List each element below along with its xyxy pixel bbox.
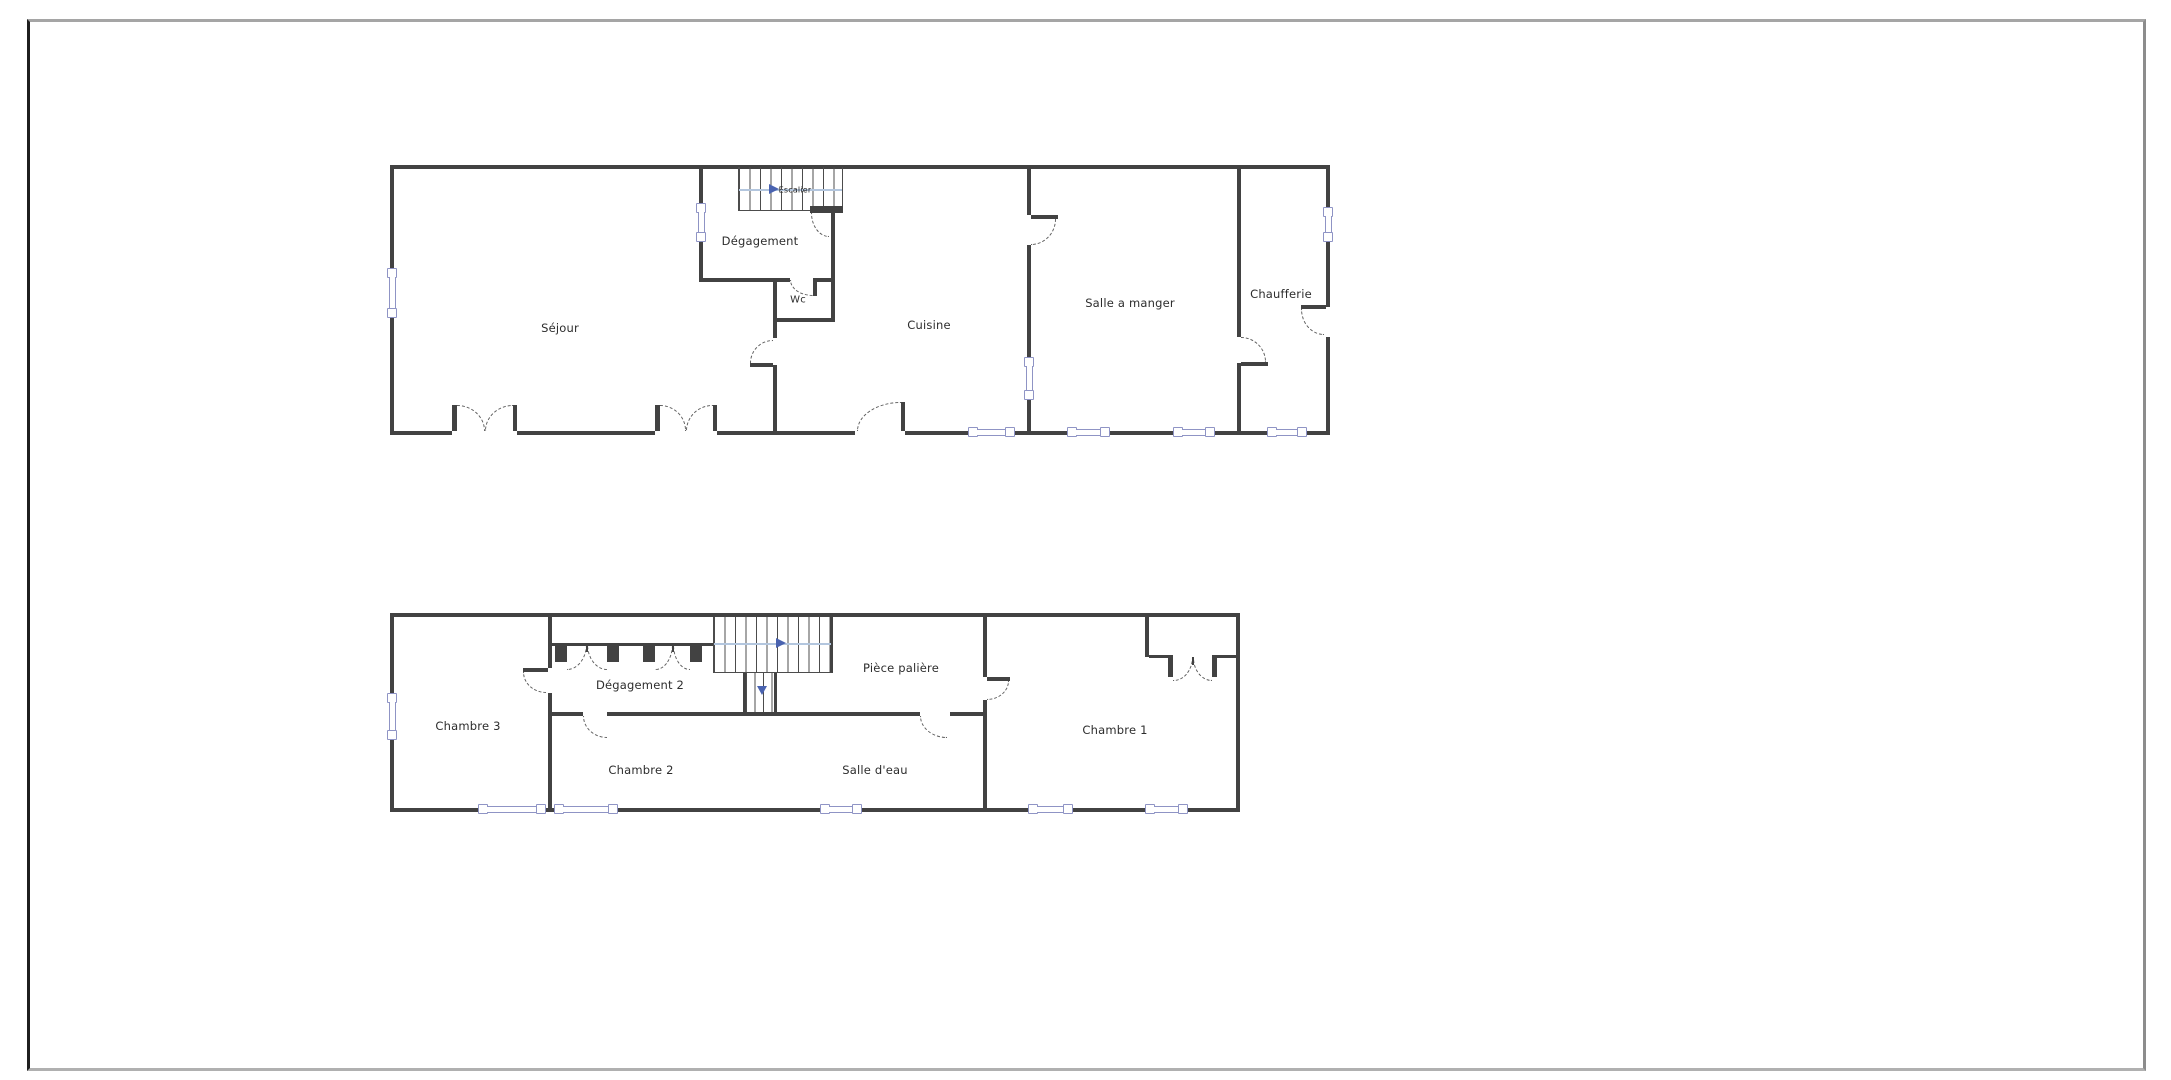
door-apex bbox=[586, 644, 588, 652]
wall-segment bbox=[548, 693, 552, 812]
window-end bbox=[608, 804, 618, 814]
window bbox=[478, 803, 546, 816]
room-label-degagement2: Dégagement 2 bbox=[596, 678, 684, 692]
wall-segment bbox=[517, 431, 655, 435]
wall-segment bbox=[1027, 400, 1031, 435]
door-leaf bbox=[901, 402, 905, 431]
room-label-chaufferie: Chaufferie bbox=[1250, 287, 1312, 301]
door-swing-arc bbox=[660, 405, 687, 431]
door-swing-arc bbox=[583, 716, 607, 738]
wall-segment bbox=[699, 165, 703, 203]
wall-segment bbox=[552, 712, 583, 716]
wall-segment bbox=[390, 318, 394, 435]
door-swing-arc bbox=[673, 644, 691, 670]
window bbox=[695, 203, 708, 242]
room-label-chambre1: Chambre 1 bbox=[1082, 723, 1147, 737]
room-label-chambre3: Chambre 3 bbox=[435, 719, 500, 733]
wall-segment bbox=[983, 700, 987, 812]
room-label-degagement: Dégagement bbox=[722, 234, 799, 248]
window-glass bbox=[977, 429, 1006, 436]
window-glass bbox=[1037, 806, 1064, 813]
wall-segment bbox=[1237, 363, 1241, 435]
door-swing-arc bbox=[485, 405, 513, 431]
french-door bbox=[655, 405, 717, 431]
window bbox=[1028, 803, 1073, 816]
door-swing-arc bbox=[587, 644, 607, 670]
window-end bbox=[1205, 427, 1215, 437]
window bbox=[386, 268, 399, 318]
closet-wall bbox=[1217, 655, 1236, 658]
staircase bbox=[713, 617, 833, 673]
closet-double-door bbox=[567, 644, 607, 670]
closet-jamb bbox=[643, 643, 655, 662]
window-glass bbox=[829, 806, 853, 813]
window-end bbox=[387, 730, 397, 740]
window-end bbox=[1063, 804, 1073, 814]
wall-segment bbox=[773, 322, 777, 338]
door-apex bbox=[1192, 657, 1194, 665]
door-leaf bbox=[813, 278, 817, 296]
wall-segment bbox=[699, 242, 703, 278]
wall-segment bbox=[607, 712, 920, 716]
door-swing-arc bbox=[1173, 657, 1193, 681]
door-swing-arc bbox=[567, 644, 587, 670]
door-leaf bbox=[750, 363, 773, 367]
wall-segment bbox=[1236, 613, 1240, 812]
room-label-escalier: Escalier bbox=[779, 186, 812, 195]
window-glass bbox=[1076, 429, 1101, 436]
room-label-salle-a-manger: Salle a manger bbox=[1085, 296, 1175, 310]
window-end bbox=[387, 308, 397, 318]
door-swing-arc bbox=[811, 213, 829, 237]
window-glass bbox=[563, 806, 609, 813]
closet-wall bbox=[1149, 655, 1168, 658]
door-swing-arc bbox=[750, 340, 773, 363]
room-label-wc: Wc bbox=[790, 295, 806, 306]
door-swing-arc bbox=[1241, 337, 1266, 362]
wall-segment bbox=[1015, 431, 1067, 435]
closet-jamb bbox=[607, 643, 619, 662]
wall-segment bbox=[1188, 808, 1240, 812]
floor-plan-first: Chambre 3 Dégagement 2 Chambre 2 Pièce p… bbox=[390, 613, 1240, 812]
closet-double-door bbox=[655, 644, 690, 670]
wall-segment bbox=[390, 165, 394, 268]
wall-segment bbox=[1145, 617, 1149, 657]
door-leaf bbox=[1241, 362, 1268, 366]
window-glass bbox=[389, 277, 396, 309]
window-end bbox=[1297, 427, 1307, 437]
wall-segment bbox=[905, 431, 968, 435]
closet-jamb bbox=[690, 643, 702, 662]
door-swing-arc bbox=[1193, 657, 1213, 681]
floor-plan-ground: Escalier Séjour Dégagement Wc Cuisine Sa… bbox=[390, 165, 1330, 435]
window-end bbox=[1005, 427, 1015, 437]
window bbox=[1067, 426, 1110, 439]
window bbox=[820, 803, 862, 816]
window-end bbox=[1024, 390, 1034, 400]
window-glass bbox=[1276, 429, 1298, 436]
wall-segment bbox=[1326, 242, 1330, 307]
door-leaf bbox=[713, 405, 718, 431]
room-label-sejour: Séjour bbox=[541, 321, 579, 335]
wall-segment bbox=[950, 712, 983, 716]
window bbox=[1023, 357, 1036, 400]
window bbox=[1267, 426, 1307, 439]
door-swing-arc bbox=[1301, 309, 1324, 335]
window-glass bbox=[487, 806, 537, 813]
closet-jamb bbox=[555, 643, 567, 662]
stair-arrow-icon bbox=[757, 686, 767, 695]
window-end bbox=[1100, 427, 1110, 437]
closet-double-door bbox=[1173, 657, 1212, 681]
door-swing-arc bbox=[655, 644, 673, 670]
door-leaf bbox=[513, 405, 518, 431]
window bbox=[554, 803, 618, 816]
window-end bbox=[696, 232, 706, 242]
door-swing-arc bbox=[1031, 219, 1056, 245]
wall-segment bbox=[390, 740, 394, 812]
french-door bbox=[452, 405, 517, 431]
wall-segment bbox=[618, 808, 820, 812]
wall-segment bbox=[831, 213, 835, 322]
door-swing-arc bbox=[987, 681, 1009, 700]
staircase-return bbox=[743, 673, 777, 715]
wall-segment bbox=[390, 613, 394, 693]
wall-segment bbox=[1326, 337, 1330, 435]
window-end bbox=[852, 804, 862, 814]
wall-segment bbox=[1326, 165, 1330, 207]
wall-segment bbox=[548, 613, 552, 668]
door-swing-arc bbox=[686, 405, 713, 431]
door-leaf bbox=[452, 405, 457, 431]
wall-segment bbox=[390, 808, 478, 812]
wall-segment bbox=[773, 318, 835, 322]
door-leaf bbox=[655, 405, 660, 431]
wall-segment bbox=[983, 613, 987, 677]
room-label-chambre2: Chambre 2 bbox=[608, 763, 673, 777]
window-glass bbox=[698, 212, 705, 233]
stair-direction-line bbox=[714, 643, 831, 645]
window bbox=[1322, 207, 1335, 242]
wall-segment bbox=[773, 365, 777, 431]
window bbox=[968, 426, 1015, 439]
window bbox=[1145, 803, 1188, 816]
wall-segment bbox=[1027, 165, 1031, 215]
door-apex bbox=[672, 644, 674, 652]
window-end bbox=[1178, 804, 1188, 814]
stair-landing bbox=[810, 206, 843, 213]
wall-segment bbox=[1073, 808, 1145, 812]
window bbox=[1173, 426, 1215, 439]
stair-arrow-icon bbox=[769, 184, 779, 194]
room-label-cuisine: Cuisine bbox=[907, 318, 950, 332]
window-glass bbox=[389, 702, 396, 731]
door-swing-arc bbox=[857, 402, 901, 431]
wall-segment bbox=[717, 431, 855, 435]
wall-segment bbox=[1215, 431, 1267, 435]
window-end bbox=[1323, 232, 1333, 242]
door-swing-arc bbox=[920, 716, 947, 738]
wall-segment bbox=[862, 808, 1028, 812]
room-label-salle-deau: Salle d'eau bbox=[842, 763, 908, 777]
room-label-piece-paliere: Pièce palière bbox=[863, 661, 939, 675]
window-end bbox=[536, 804, 546, 814]
wall-segment bbox=[1110, 431, 1173, 435]
window-glass bbox=[1154, 806, 1179, 813]
window-glass bbox=[1026, 366, 1033, 391]
wall-segment bbox=[390, 431, 452, 435]
door-swing-arc bbox=[457, 405, 485, 431]
window bbox=[386, 693, 399, 740]
wall-segment bbox=[390, 165, 1330, 169]
wall-segment bbox=[1237, 165, 1241, 337]
window-glass bbox=[1182, 429, 1206, 436]
screenshot-root: { "colors": { "wall": "#424242", "win": … bbox=[0, 0, 2171, 1080]
door-swing-arc bbox=[523, 672, 546, 693]
stair-arrow-icon bbox=[776, 638, 786, 648]
window-glass bbox=[1325, 216, 1332, 233]
closet-jamb bbox=[1212, 655, 1217, 677]
wall-segment bbox=[773, 278, 777, 322]
wall-segment bbox=[1027, 245, 1031, 357]
